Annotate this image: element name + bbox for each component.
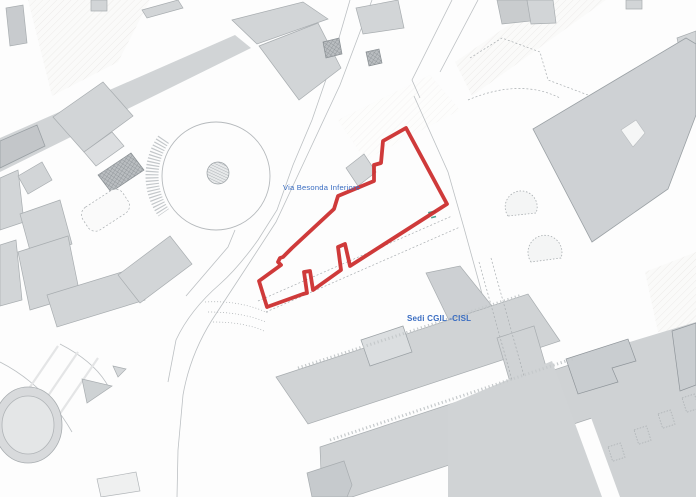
site-plan-map: Via Besonda Inferiore Sedi CGIL -CISL (0, 0, 696, 497)
building-block (527, 0, 556, 24)
building-block (626, 0, 642, 9)
building-block (497, 0, 531, 24)
building-block (91, 0, 107, 11)
map-background (0, 0, 696, 497)
roundabout (0, 387, 62, 463)
street-label: Via Besonda Inferiore (283, 183, 360, 192)
site-label: Sedi CGIL -CISL (407, 314, 471, 323)
building-block (6, 5, 27, 46)
crosshatch-structure (323, 38, 342, 58)
crosshatch-structure (366, 49, 382, 66)
plaza-center-structure (207, 162, 229, 184)
site-plan: Via Besonda Inferiore Sedi CGIL -CISL (0, 0, 696, 497)
